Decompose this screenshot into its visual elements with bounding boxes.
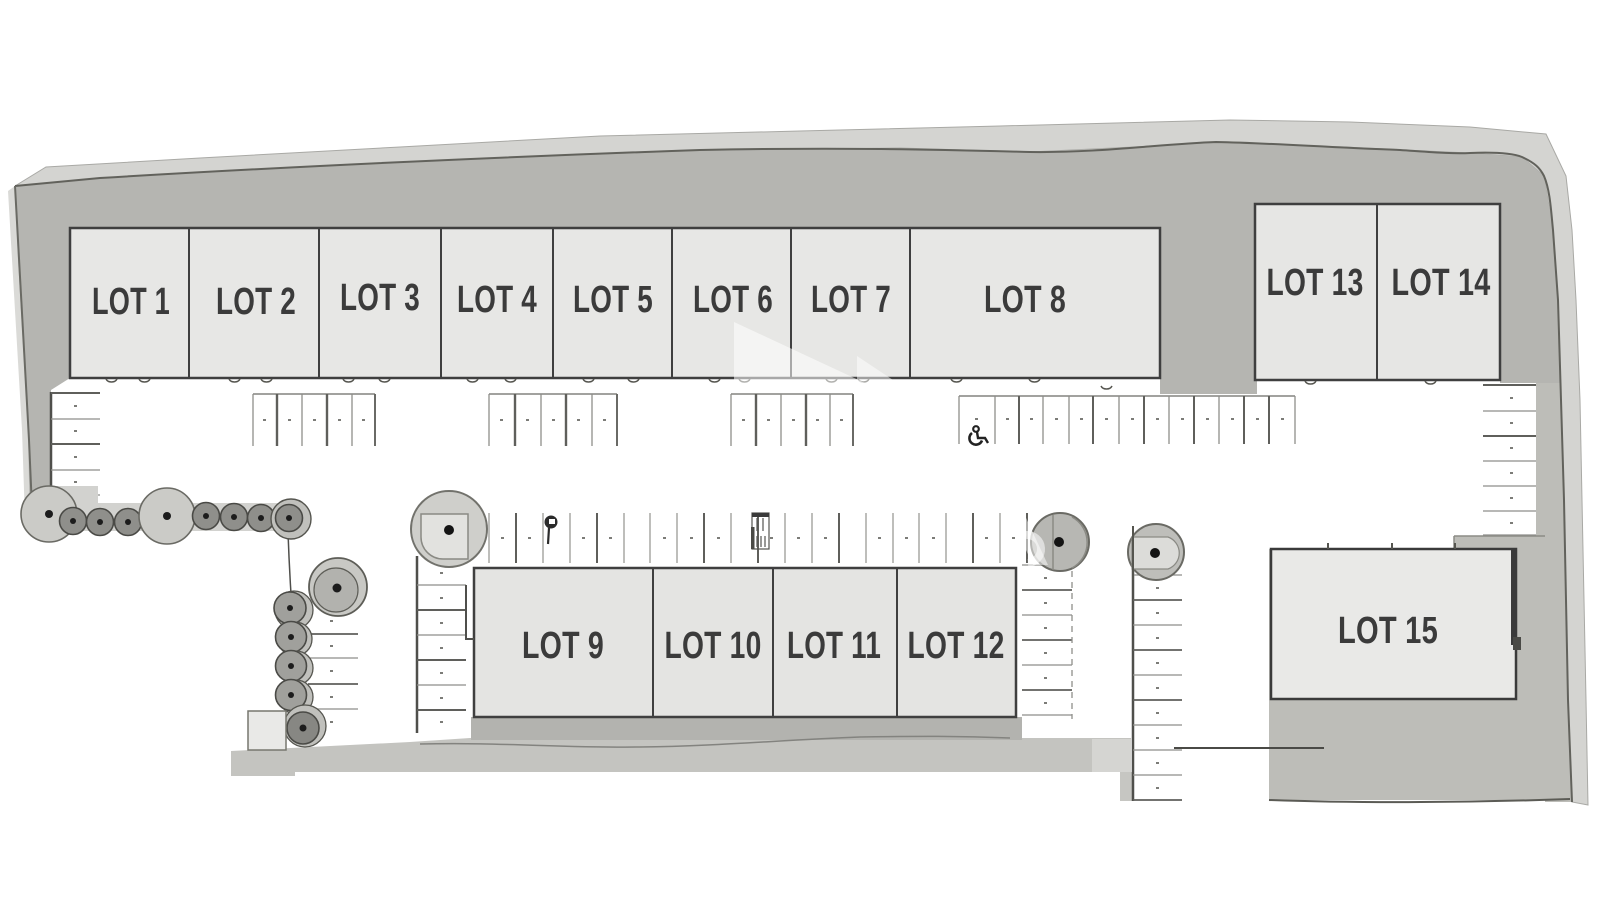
svg-text:LOT 3: LOT 3 [340, 277, 420, 319]
svg-text:LOT 10: LOT 10 [665, 625, 762, 667]
svg-text:LOT 8: LOT 8 [984, 279, 1066, 321]
svg-text:LOT 9: LOT 9 [522, 625, 604, 667]
svg-text:LOT 11: LOT 11 [787, 625, 881, 667]
svg-text:LOT 6: LOT 6 [693, 279, 773, 321]
svg-text:LOT 5: LOT 5 [573, 279, 653, 321]
svg-text:LOT 4: LOT 4 [457, 279, 537, 321]
svg-text:LOT 1: LOT 1 [92, 281, 170, 323]
svg-text:LOT 2: LOT 2 [216, 281, 296, 323]
svg-text:LOT 13: LOT 13 [1267, 262, 1364, 304]
svg-text:LOT 7: LOT 7 [811, 279, 891, 321]
svg-text:LOT 14: LOT 14 [1392, 262, 1491, 304]
svg-text:LOT 12: LOT 12 [908, 625, 1005, 667]
svg-text:LOT 15: LOT 15 [1338, 610, 1438, 652]
